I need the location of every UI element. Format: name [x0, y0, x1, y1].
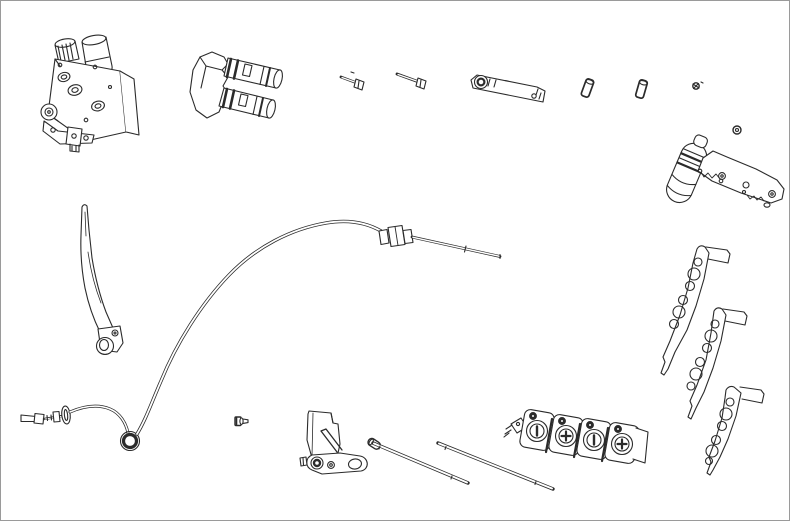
lock-nut-part: [733, 126, 741, 134]
parts-diagram-svg: [0, 0, 790, 521]
parts-diagram-canvas: [0, 0, 790, 521]
